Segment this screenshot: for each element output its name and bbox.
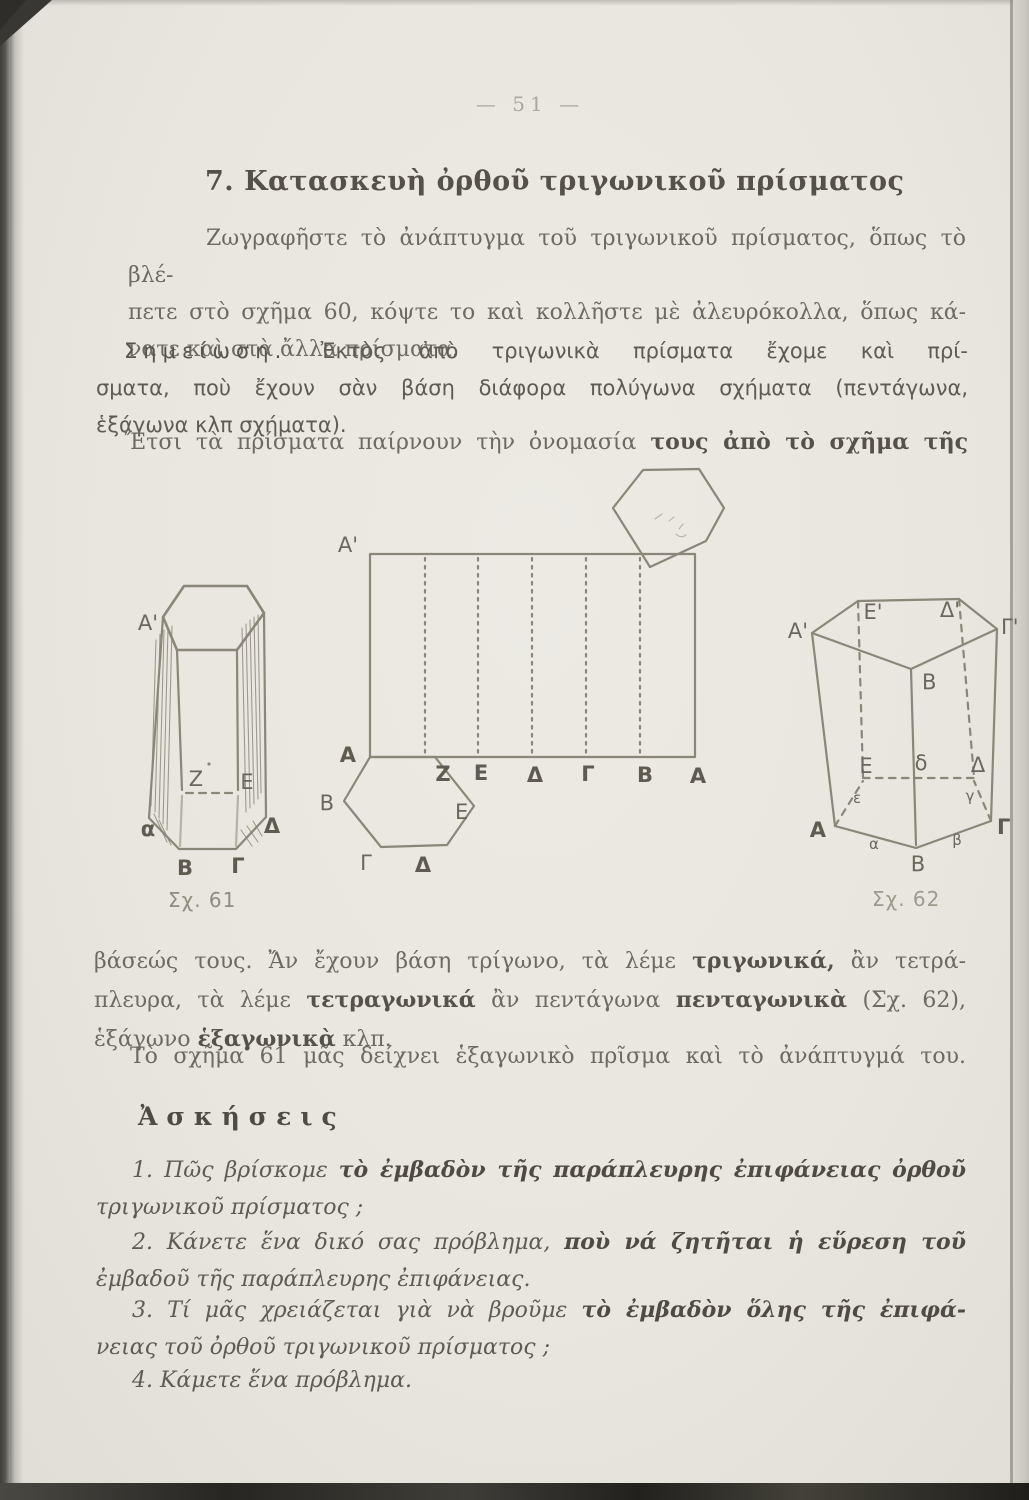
p62-label-a-prime: Α' (788, 619, 808, 643)
p62-label-e-mid: Ε (859, 754, 872, 778)
bases-l1-bold: τριγωνικά, (692, 948, 835, 974)
label-b: Β (177, 856, 193, 880)
exercise-4: 4. Κάμετε ἕνα πρόβλημα. (96, 1362, 966, 1399)
p62-label-g-prime: Γ' (1001, 615, 1018, 639)
figure-net-unfolded-prism: Α' Α Ζ Ε Δ Γ Β Α Β Ε Γ Δ (315, 450, 765, 875)
net-hex-label-e: Ε (455, 800, 468, 824)
bases-l2-bold2: πενταγωνικὰ (676, 987, 847, 1013)
p62-label-e-prime: Ε' (863, 600, 882, 624)
figure-62-labels: Α' Ε' Δ' Γ' Β Ε δ Δ ε γ Α Γ Β α β (788, 598, 1019, 876)
scan-bottom-edge (0, 1483, 1029, 1500)
intro-line-1: Ζωγραφῆστε τὸ ἀνάπτυγμα τοῦ τριγωνικοῦ π… (128, 220, 966, 294)
prism-right-face-hatching (241, 615, 262, 846)
net-fold-lines-dotted (425, 558, 640, 754)
closing-line: Τὸ σχῆμα 61 μᾶς δείχνει ἑξαγωνικὸ πρῖσμα… (94, 1038, 966, 1075)
bases-line-2: πλευρα, τὰ λέμε τετραγωνικά ἂν πεντάγωνα… (94, 981, 966, 1020)
exercise-1: 1. Πῶς βρίσκομε τὸ ἐμβαδὸν τῆς παράπλευρ… (96, 1152, 966, 1226)
scan-corner-top-left-dark (0, 0, 26, 30)
pentaprism-top-face (812, 599, 997, 669)
bases-l2-e: (Σχ. 62), (847, 988, 966, 1013)
scanned-book-page: — 51 — 7. Κατασκευὴ ὀρθοῦ τριγωνικοῦ πρί… (0, 0, 1029, 1500)
intro-line-2: πετε στὸ σχῆμα 60, κόψτε το καὶ κολλῆστε… (128, 294, 966, 331)
ex3-l1-bold: τὸ ἐμβαδὸν ὅλης τῆς ἐπιφά- (582, 1297, 966, 1323)
p62-label-d-mid: Δ (971, 753, 986, 777)
p62-label-alpha: α (869, 835, 879, 853)
bases-l2-c: ἂν πεντάγωνα (476, 988, 676, 1013)
ex1-l1-a: 1. Πῶς βρίσκομε (132, 1158, 339, 1183)
net-labels: Α' Α Ζ Ε Δ Γ Β Α Β Ε Γ Δ (320, 533, 707, 877)
net-label-a-left: Α (340, 743, 357, 767)
note-line-1-rest: Ἐκτὸς ἀπὸ τριγωνικὰ πρίσματα ἔχομε καὶ π… (287, 339, 968, 363)
note-line-2: σματα, ποὺ ἔχουν σὰν βάση διάφορα πολύγω… (96, 370, 968, 407)
figure-61-caption: Σχ. 61 (168, 888, 236, 912)
net-label-z: Ζ (435, 762, 450, 786)
exercise-3: 3. Τί μᾶς χρειάζεται γιὰ νὰ βροῦμε τὸ ἐμ… (96, 1292, 966, 1366)
p62-label-epsilon: ε (853, 789, 861, 807)
p62-label-gamma-small: γ (966, 787, 975, 805)
p62-label-a-bottom: Α (810, 818, 827, 842)
bases-l1-c: ἂν τετρά- (835, 949, 966, 974)
label-gamma: Γ (231, 854, 244, 878)
exercise-2: 2. Κάνετε ἕνα δικό σας πρόβλημα, ποὺ νά … (96, 1224, 966, 1298)
prism-front-edges (177, 650, 238, 846)
scan-left-edge-shadow (10, 0, 24, 1500)
closing-text: Τὸ σχῆμα 61 μᾶς δείχνει ἑξαγωνικὸ πρῖσμα… (130, 1044, 966, 1069)
bases-l1-a: βάσεώς τους. Ἄν ἔχουν βάση τρίγωνο, τὰ λ… (94, 949, 692, 974)
p62-label-delta-small: δ (915, 751, 928, 775)
scan-top-edge-shade (0, 0, 1029, 6)
exercise-4-line-1: 4. Κάμετε ἕνα πρόβλημα. (96, 1362, 966, 1399)
exercise-1-line-2: τριγωνικοῦ πρίσματος ; (96, 1189, 966, 1226)
ex2-l1-bold: ποὺ νά ζητῆται ἡ εὕρεση τοῦ (564, 1229, 966, 1255)
bases-line-1: βάσεώς τους. Ἄν ἔχουν βάση τρίγωνο, τὰ λ… (94, 942, 966, 981)
figure-61-hexagonal-prism: Α' Ζ Ε α Δ Β Γ (120, 553, 335, 878)
exercise-2-line-1: 2. Κάνετε ἕνα δικό σας πρόβλημα, ποὺ νά … (96, 1224, 966, 1261)
ex3-l1-a: 3. Τί μᾶς χρειάζεται γιὰ νὰ βροῦμε (132, 1298, 582, 1323)
exercise-1-line-1: 1. Πῶς βρίσκομε τὸ ἐμβαδὸν τῆς παράπλευρ… (96, 1152, 966, 1189)
prism-top-hexagon (163, 586, 264, 650)
section-heading: 7. Κατασκευὴ ὀρθοῦ τριγωνικοῦ πρίσματος (205, 166, 904, 197)
p62-label-b-top: Β (922, 670, 936, 694)
p62-label-d-prime: Δ' (940, 598, 960, 622)
net-label-a-right: Α (690, 764, 707, 788)
figure-62-pentagonal-prism: Α' Ε' Δ' Γ' Β Ε δ Δ ε γ Α Γ Β α β (788, 572, 1023, 882)
label-z: Ζ (189, 767, 203, 791)
label-e: Ε (240, 770, 253, 794)
bases-l2-a: πλευρα, τὰ λέμε (94, 988, 306, 1013)
figure-62-caption: Σχ. 62 (872, 887, 940, 911)
exercise-3-line-2: νειας τοῦ ὀρθοῦ τριγωνικοῦ πρίσματος ; (96, 1329, 966, 1366)
label-delta: Δ (264, 814, 281, 838)
label-alpha: α (141, 817, 155, 841)
p62-label-b-bottom: Β (911, 852, 925, 876)
exercises-heading: Ἀσκήσεις (138, 1102, 346, 1131)
net-label-b: Β (637, 763, 653, 787)
page-number: — 51 — (420, 92, 640, 116)
note-line-1: Σημείωση. Ἐκτὸς ἀπὸ τριγωνικὰ πρίσματα ἔ… (96, 333, 968, 370)
net-label-delta: Δ (527, 763, 544, 787)
ex1-l1-bold: τὸ ἐμβαδὸν τῆς παράπλευρης ἐπιφάνειας ὀρ… (339, 1157, 966, 1183)
net-top-hexagon-flap (613, 469, 724, 567)
bases-l2-bold1: τετραγωνικά (306, 987, 475, 1013)
note-label: Σημείωση. (124, 339, 287, 363)
net-label-gamma: Γ (581, 762, 594, 786)
net-top-hexagon-marks (655, 514, 686, 537)
label-a-prime: Α' (138, 611, 158, 635)
exercise-3-line-1: 3. Τί μᾶς χρειάζεται γιὰ νὰ βροῦμε τὸ ἐμ… (96, 1292, 966, 1329)
net-hex-label-gamma: Γ (360, 851, 372, 875)
stray-ink-dot (207, 762, 210, 765)
ex2-l1-a: 2. Κάνετε ἕνα δικό σας πρόβλημα, (132, 1230, 564, 1255)
net-label-e: Ε (474, 761, 488, 785)
p62-label-beta: β (952, 831, 962, 849)
net-label-a-prime: Α' (338, 533, 358, 557)
net-hex-label-delta: Δ (415, 853, 432, 877)
net-hex-label-b: Β (320, 791, 334, 815)
ex4-text: 4. Κάμετε ἕνα πρόβλημα. (132, 1368, 412, 1393)
p62-label-g-bottom: Γ (997, 815, 1010, 839)
pentaprism-solid-edges (812, 629, 997, 848)
